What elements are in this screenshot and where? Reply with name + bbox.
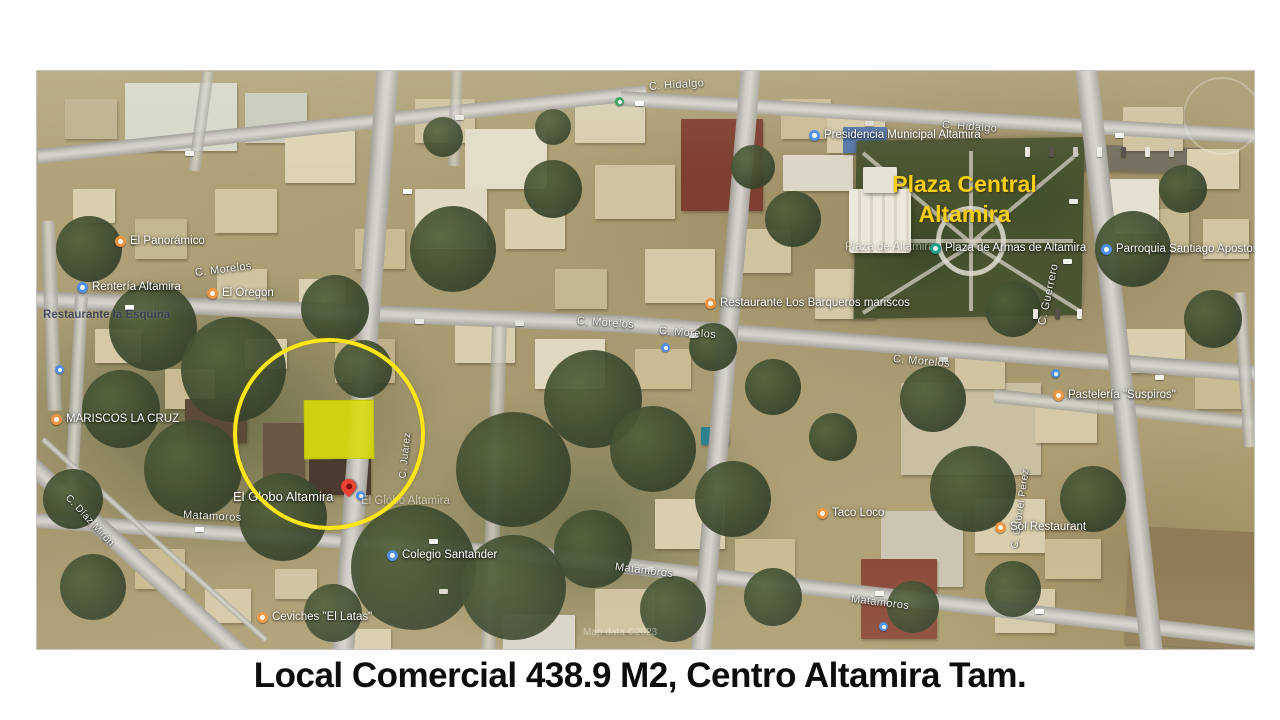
poi-plaza-de-armas: Plaza de Armas de Altamira — [930, 242, 1086, 254]
place-dot-icon — [661, 343, 670, 352]
highlight-circle — [233, 338, 425, 530]
restaurant-icon — [1053, 390, 1064, 401]
school-icon — [387, 550, 398, 561]
vehicle — [1077, 309, 1082, 319]
vehicle — [439, 589, 448, 594]
restaurant-icon — [995, 522, 1006, 533]
map-headline: Plaza Central Altamira — [857, 169, 1072, 229]
poi-renteria-altamira: Rentería Altamira — [77, 281, 181, 293]
place-dot-icon — [879, 622, 888, 631]
restaurant-icon — [257, 612, 268, 623]
listing-caption: Local Comercial 438.9 M2, Centro Altamir… — [0, 656, 1280, 696]
poi-plaza-de-altamira-ghost: Plaza de Altamira — [845, 241, 935, 253]
place-dot-icon — [55, 365, 64, 374]
compass-ring-icon — [1183, 77, 1255, 155]
map-vehicles-layer — [37, 71, 1254, 649]
poi-mariscos-la-cruz: MARISCOS LA CRUZ — [51, 413, 179, 425]
place-dot-icon — [1051, 369, 1060, 378]
restaurant-icon — [705, 298, 716, 309]
vehicle — [635, 101, 644, 106]
vehicle — [429, 539, 438, 544]
map-watermark: Map data ©2023 — [583, 627, 657, 638]
vehicle — [1049, 147, 1054, 157]
vehicle — [1115, 133, 1124, 138]
vehicle — [1155, 375, 1164, 380]
vehicle — [1063, 259, 1072, 264]
poi-restaurante-mariscos: Restaurante Los Barqueros mariscos — [705, 297, 910, 309]
vehicle — [1169, 147, 1174, 157]
vehicle — [515, 321, 524, 326]
poi-colegio-santander: Colegio Santander — [387, 549, 497, 561]
restaurant-icon — [115, 236, 126, 247]
church-icon — [1101, 244, 1112, 255]
vehicle — [185, 151, 194, 156]
poi-sol-restaurant: Sol Restaurant — [995, 521, 1086, 533]
vehicle — [1035, 609, 1044, 614]
place-icon — [77, 282, 88, 293]
headline-line1: Plaza Central — [857, 169, 1072, 199]
vehicle — [1145, 147, 1150, 157]
poi-el-oregon: El Oregon — [207, 287, 274, 299]
park-dot-icon — [615, 97, 624, 106]
vehicle — [1025, 147, 1030, 157]
vehicle — [455, 115, 464, 120]
vehicle — [195, 527, 204, 532]
poi-parroquia-santiago-apostol: Parroquia Santiago Apóstol — [1101, 243, 1255, 255]
restaurant-icon — [817, 508, 828, 519]
vehicle — [865, 121, 874, 126]
restaurant-icon — [51, 414, 62, 425]
restaurant-icon — [207, 288, 218, 299]
poi-ceviches-el-latas: Ceviches "El Latas" — [257, 611, 372, 623]
poi-el-panoramico: El Panorámico — [115, 235, 205, 247]
vehicle — [1073, 147, 1078, 157]
vehicle — [415, 319, 424, 324]
poi-taco-loco: Taco Loco — [817, 507, 884, 519]
vehicle — [1097, 147, 1102, 157]
poi-pasteleria-suspiros: Pastelería "Suspiros" — [1053, 389, 1176, 401]
satellite-map: C. Hidalgo C. Hidalgo C. Morelos C. More… — [36, 70, 1255, 650]
civic-building-icon — [809, 130, 820, 141]
poi-presidencia-municipal: Presidencia Municipal Altamira — [809, 129, 981, 141]
vehicle — [403, 189, 412, 194]
vehicle — [1055, 309, 1060, 319]
headline-line2: Altamira — [857, 199, 1072, 229]
vehicle — [1121, 147, 1126, 157]
park-icon — [930, 243, 941, 254]
poi-restaurante-la-esquina: Restaurante la Esquina — [43, 309, 170, 321]
